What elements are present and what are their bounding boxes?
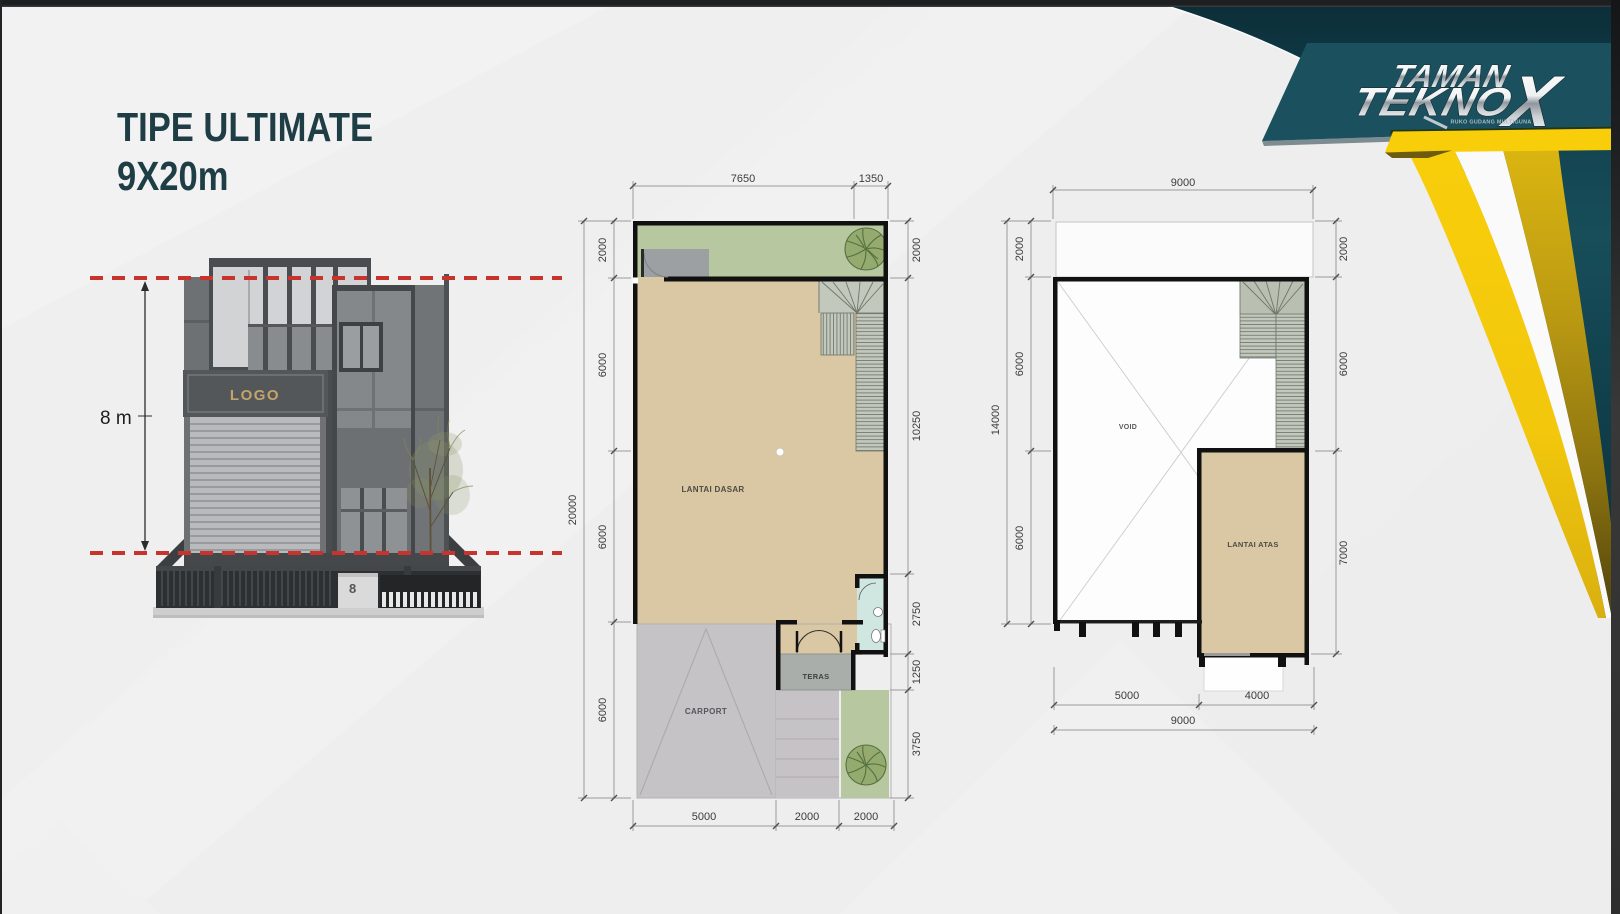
svg-text:RUKO GUDANG MULTIGUNA: RUKO GUDANG MULTIGUNA: [1450, 120, 1531, 126]
svg-text:TEKNO: TEKNO: [1348, 79, 1516, 124]
